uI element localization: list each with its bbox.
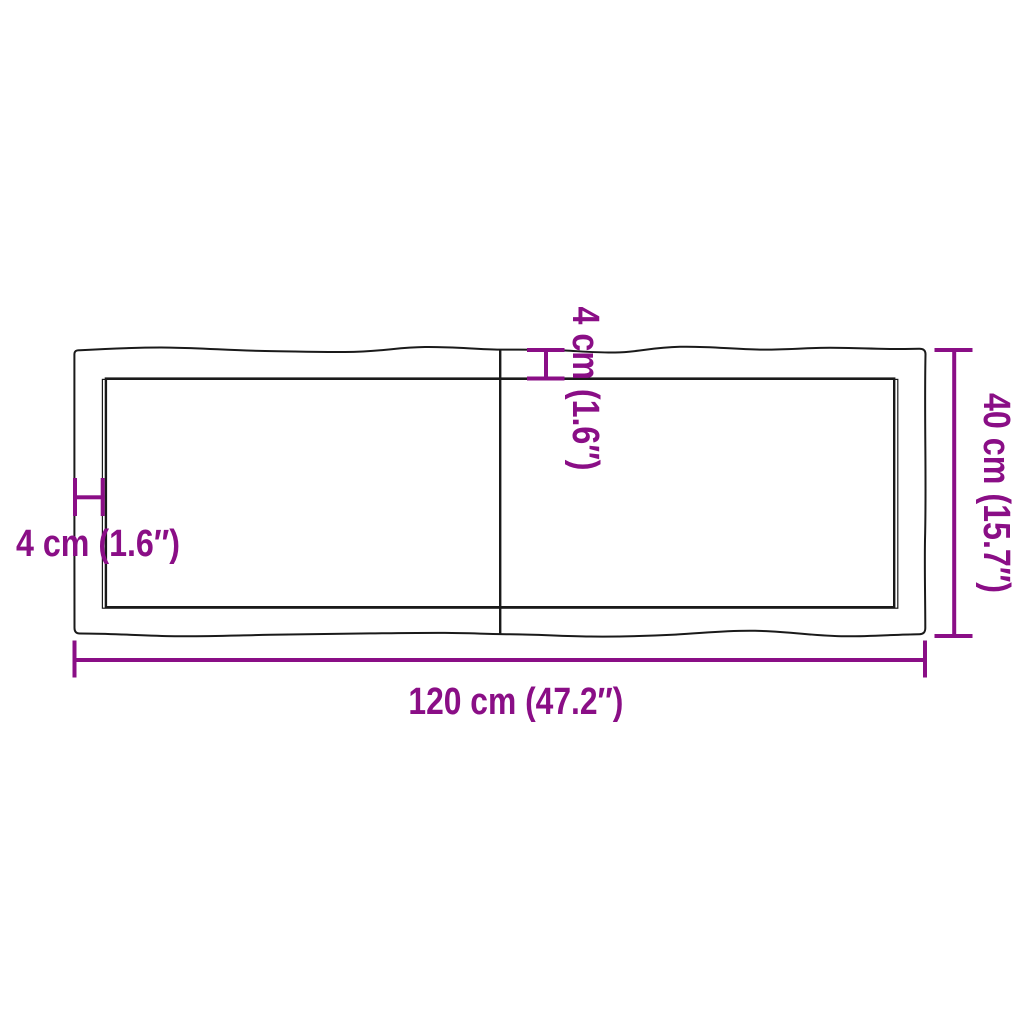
svg-text:120 cm (47.2″): 120 cm (47.2″): [408, 681, 623, 723]
svg-text:40 cm (15.7″): 40 cm (15.7″): [975, 393, 1017, 593]
svg-text:4 cm (1.6″): 4 cm (1.6″): [564, 307, 606, 471]
svg-text:4 cm (1.6″): 4 cm (1.6″): [16, 523, 180, 565]
